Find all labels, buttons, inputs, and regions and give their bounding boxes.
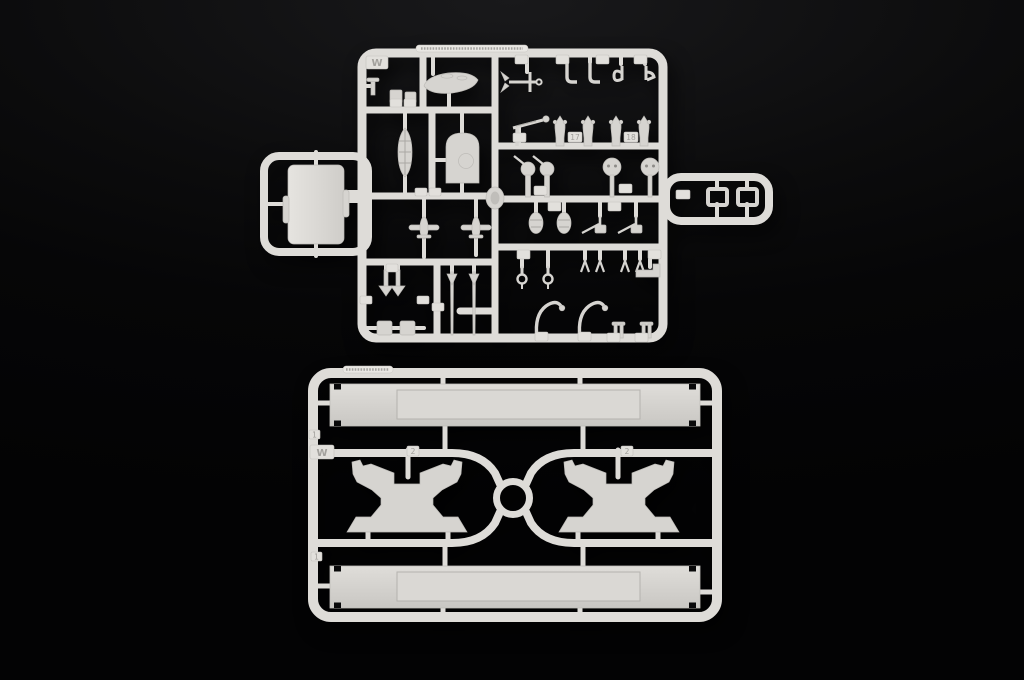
- tab-2-right: 2: [621, 446, 633, 456]
- tab-18: 18: [624, 132, 638, 142]
- part-pulley-davits: [518, 266, 553, 289]
- part-base-rail-bottom: [330, 566, 700, 608]
- part-tapered-masts: [447, 272, 479, 335]
- photo-backdrop: W: [0, 0, 1024, 680]
- ring-runner: [497, 482, 530, 515]
- bottom-sprue: 1 W 2 2 1: [309, 366, 717, 617]
- tab-17: 17: [568, 132, 582, 142]
- part-arrow-masts: [379, 270, 405, 296]
- part-whaleboat: [398, 128, 412, 177]
- part-floatplanes: [409, 217, 491, 239]
- part-life-raft-disc: [486, 187, 504, 209]
- part-number-18: 18: [626, 133, 636, 142]
- part-number-2a: 2: [411, 447, 416, 456]
- part-fork-stanchions: [581, 261, 644, 272]
- part-number-17: 17: [570, 133, 580, 142]
- part-twin-guns: [582, 216, 642, 233]
- top-sprue: W: [264, 45, 769, 342]
- gate-letter-bottom: W: [316, 448, 327, 459]
- part-chain-stoppers: [614, 66, 654, 80]
- gate-tab-w-bottom: W: [310, 445, 334, 459]
- part-superstructure-block: [283, 165, 349, 244]
- part-number-2b: 2: [625, 447, 630, 456]
- molded-text-strip: [416, 45, 528, 52]
- gate-tab-w: W: [366, 56, 388, 69]
- gate-letter: W: [371, 58, 382, 69]
- sprue-photo: W: [0, 0, 1024, 680]
- part-base-rail-top: [330, 384, 700, 426]
- tab-1-top: 1: [309, 430, 320, 440]
- part-arched-bulkhead: [446, 133, 479, 183]
- part-paravanes: [529, 213, 571, 234]
- molded-text-strip-bottom: [343, 366, 393, 373]
- part-number-1a: 1: [312, 431, 317, 440]
- part-boat-davits-j: [567, 60, 600, 82]
- tab-1-bottom: 1: [311, 552, 322, 562]
- part-number-1b: 1: [314, 553, 319, 562]
- part-anchor: [501, 72, 542, 92]
- part-hatch-frames: [708, 189, 757, 205]
- tab-2-left: 2: [407, 446, 419, 456]
